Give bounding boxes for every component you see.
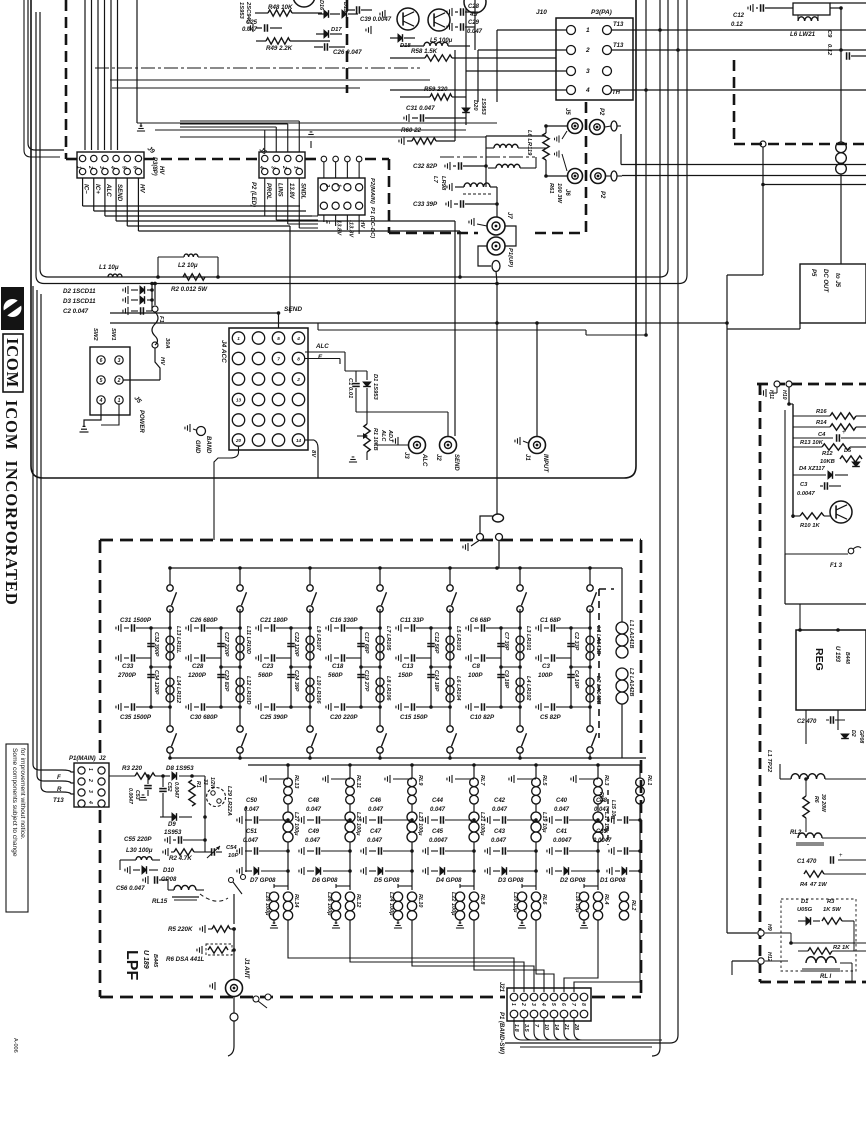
svg-text:2700P: 2700P — [117, 672, 137, 679]
svg-text:R6: R6 — [813, 796, 819, 803]
svg-text:C28: C28 — [468, 4, 480, 10]
svg-text:LINS: LINS — [276, 183, 282, 197]
svg-text:1S953: 1S953 — [238, 2, 244, 20]
svg-text:ICOM: ICOM — [3, 338, 22, 388]
svg-text:1: 1 — [76, 166, 82, 169]
svg-text:RL10: RL10 — [417, 894, 423, 907]
svg-text:J1: J1 — [524, 454, 530, 461]
svg-text:4: 4 — [585, 87, 590, 94]
svg-text:C1 68P: C1 68P — [540, 617, 562, 624]
svg-text:C26 680P: C26 680P — [190, 617, 218, 624]
svg-text:3: 3 — [87, 790, 93, 793]
svg-text:10KB: 10KB — [820, 459, 835, 465]
svg-text:2: 2 — [87, 778, 93, 782]
svg-text:4: 4 — [258, 165, 264, 169]
svg-text:GP08: GP08 — [858, 730, 864, 743]
svg-text:560P: 560P — [258, 672, 273, 679]
svg-text:ALC: ALC — [105, 183, 112, 197]
svg-text:C17 68P: C17 68P — [363, 632, 369, 654]
svg-text:C9 18P: C9 18P — [503, 670, 509, 689]
svg-text:2: 2 — [281, 165, 287, 169]
svg-text:C30 680P: C30 680P — [190, 714, 218, 721]
svg-text:1.8: 1.8 — [513, 1024, 519, 1033]
svg-text:L27 100μ: L27 100μ — [293, 812, 299, 836]
svg-text:LPF: LPF — [123, 950, 140, 980]
svg-text:D3 1SCD11: D3 1SCD11 — [63, 298, 96, 305]
svg-text:R3: R3 — [827, 899, 835, 905]
svg-text:P1(MAIN) J2: P1(MAIN) J2 — [69, 756, 106, 762]
svg-text:C2 33P: C2 33P — [573, 632, 579, 651]
svg-text:560P: 560P — [328, 672, 343, 679]
svg-text:5: 5 — [277, 336, 280, 341]
svg-text:C53: C53 — [134, 790, 140, 800]
svg-text:10P: 10P — [228, 853, 238, 859]
svg-text:J1 ANT: J1 ANT — [243, 958, 249, 980]
svg-text:C45: C45 — [432, 829, 444, 835]
svg-text:2: 2 — [324, 183, 330, 187]
svg-text:+: + — [842, 429, 846, 436]
svg-text:0.0047: 0.0047 — [429, 838, 448, 844]
svg-text:D4 GP08: D4 GP08 — [436, 877, 462, 884]
svg-text:GND: GND — [194, 440, 200, 454]
svg-text:SEND: SEND — [116, 184, 123, 202]
svg-text:C10 82P: C10 82P — [470, 714, 495, 721]
svg-text:SNDL: SNDL — [299, 183, 305, 200]
svg-text:L30 100μ: L30 100μ — [126, 847, 153, 854]
svg-text:L7: L7 — [432, 176, 438, 184]
svg-text:C29: C29 — [468, 20, 480, 26]
svg-text:-13.8V: -13.8V — [347, 220, 353, 238]
svg-text:H9: H9 — [766, 924, 772, 931]
svg-text:14: 14 — [296, 438, 302, 443]
svg-text:L1 10μ: L1 10μ — [99, 264, 119, 271]
svg-text:0.12: 0.12 — [826, 44, 832, 56]
svg-text:C4: C4 — [818, 432, 826, 438]
svg-text:R2 1K: R2 1K — [833, 945, 850, 951]
svg-text:C50: C50 — [246, 798, 258, 804]
svg-text:L4 LR102: L4 LR102 — [525, 676, 531, 700]
svg-text:R16: R16 — [816, 409, 827, 415]
svg-text:ALC: ALC — [421, 453, 427, 467]
svg-text:1: 1 — [292, 166, 298, 169]
svg-text:C12: C12 — [733, 13, 745, 19]
svg-text:C25: C25 — [246, 20, 258, 26]
svg-text:INPUT: INPUT — [542, 454, 548, 473]
svg-text:R1: R1 — [195, 781, 201, 788]
svg-text:F: F — [57, 774, 61, 781]
svg-text:for improvement without notice: for improvement without notice. — [19, 748, 26, 840]
svg-text:R6 DSA 441L: R6 DSA 441L — [166, 956, 205, 963]
svg-text:R48 10K: R48 10K — [268, 4, 293, 11]
svg-text:4: 4 — [296, 336, 300, 341]
svg-text:to J5: to J5 — [834, 273, 840, 288]
svg-text:C19 27P: C19 27P — [363, 670, 369, 692]
svg-text:REG: REG — [813, 648, 825, 671]
svg-text:J2: J2 — [435, 454, 441, 461]
svg-text:J7: J7 — [506, 212, 512, 219]
svg-text:HV: HV — [359, 220, 365, 229]
svg-text:D5: D5 — [844, 448, 852, 454]
svg-text:T13: T13 — [53, 797, 64, 804]
svg-text:PROL: PROL — [265, 183, 271, 200]
svg-text:0.0047: 0.0047 — [173, 782, 179, 799]
svg-text:RL13: RL13 — [293, 775, 299, 788]
svg-text:L13 LR11L: L13 LR11L — [175, 626, 181, 654]
svg-text:P1(UP): P1(UP) — [507, 248, 513, 267]
svg-text:+: + — [839, 853, 843, 859]
svg-text:0.047: 0.047 — [306, 807, 322, 813]
svg-text:C31 0.047: C31 0.047 — [406, 105, 435, 112]
svg-text:C25 390P: C25 390P — [260, 714, 288, 721]
svg-text:C46: C46 — [370, 798, 382, 804]
svg-text:C31 1500P: C31 1500P — [120, 617, 152, 624]
svg-text:C16 330P: C16 330P — [330, 617, 358, 624]
svg-text:D20: D20 — [472, 100, 478, 111]
svg-text:J3: J3 — [403, 452, 409, 459]
svg-text:0.047: 0.047 — [367, 838, 383, 844]
svg-text:2: 2 — [296, 377, 300, 382]
svg-text:D7 GP08: D7 GP08 — [250, 877, 276, 884]
svg-text:RL3: RL3 — [603, 775, 609, 785]
svg-text:C22 120P: C22 120P — [293, 632, 299, 657]
svg-text:100 3W: 100 3W — [556, 183, 562, 204]
svg-text:C2 0.047: C2 0.047 — [63, 308, 89, 315]
svg-text:D1: D1 — [801, 899, 808, 905]
svg-text:R5 220K: R5 220K — [168, 926, 193, 933]
svg-text:13.8V: 13.8V — [336, 220, 342, 236]
svg-text:J5: J5 — [564, 108, 570, 115]
svg-text:L29 LR22A: L29 LR22A — [226, 786, 232, 816]
svg-text:3: 3 — [118, 358, 121, 364]
svg-text:1: 1 — [336, 184, 342, 187]
svg-text:TH: TH — [612, 90, 621, 96]
svg-text:1: 1 — [87, 768, 93, 771]
svg-text:0.0047: 0.0047 — [127, 788, 133, 805]
svg-text:C49: C49 — [308, 829, 320, 835]
svg-text:D10: D10 — [163, 868, 175, 874]
svg-text:0.047: 0.047 — [430, 807, 446, 813]
svg-text:DC OUT: DC OUT — [822, 269, 828, 293]
svg-text:L5 LR103: L5 LR103 — [455, 626, 461, 650]
svg-text:J4 ACC: J4 ACC — [220, 340, 227, 363]
svg-text:R3 220: R3 220 — [122, 765, 143, 772]
svg-text:R49 2.2K: R49 2.2K — [266, 45, 293, 52]
svg-text:R12: R12 — [822, 451, 833, 457]
svg-text:RL6: RL6 — [541, 894, 547, 905]
svg-text:P5: P5 — [810, 269, 816, 277]
svg-text:L2 LA142B: L2 LA142B — [628, 668, 634, 696]
svg-text:R58 1.5K: R58 1.5K — [411, 48, 438, 55]
svg-text:0.12: 0.12 — [731, 22, 743, 28]
svg-text:C21 180P: C21 180P — [260, 617, 288, 624]
svg-text:ICOM INCORPORATED: ICOM INCORPORATED — [2, 400, 21, 606]
svg-text:L14 LR112: L14 LR112 — [175, 676, 181, 703]
svg-text:P3(8P): P3(8P) — [151, 157, 157, 176]
svg-text:D1 1S953: D1 1S953 — [372, 374, 378, 401]
svg-text:5: 5 — [120, 166, 126, 169]
svg-text:T13: T13 — [613, 43, 624, 49]
svg-text:B448: B448 — [844, 652, 850, 664]
svg-text:C6 68P: C6 68P — [470, 617, 492, 624]
svg-text:RL11: RL11 — [355, 775, 361, 788]
svg-text:RL1: RL1 — [598, 792, 604, 802]
svg-text:30A: 30A — [164, 338, 170, 349]
svg-text:10: 10 — [543, 1024, 549, 1030]
svg-text:D2 1SCD11: D2 1SCD11 — [63, 288, 96, 295]
svg-text:T13: T13 — [613, 22, 624, 28]
svg-text:1: 1 — [586, 27, 590, 34]
svg-text:2: 2 — [520, 1002, 526, 1006]
svg-text:R60 22: R60 22 — [401, 127, 422, 134]
svg-text:P2: P2 — [598, 108, 604, 116]
svg-text:RL8: RL8 — [479, 894, 485, 905]
svg-text:0.0047: 0.0047 — [797, 491, 816, 497]
svg-text:Some components subject to cha: Some components subject to change — [11, 748, 18, 857]
svg-text:1S953: 1S953 — [164, 830, 182, 836]
svg-text:C1 470: C1 470 — [797, 859, 817, 865]
svg-text:20: 20 — [235, 438, 242, 443]
svg-text:13: 13 — [236, 397, 242, 402]
svg-text:C20 220P: C20 220P — [330, 714, 358, 721]
svg-text:L6 LR119: L6 LR119 — [526, 130, 532, 156]
svg-text:4.7: 4.7 — [469, 12, 479, 18]
svg-text:C43: C43 — [494, 829, 506, 835]
svg-text:C39: C39 — [596, 829, 608, 835]
svg-text:1S953: 1S953 — [480, 98, 486, 116]
svg-text:C1 0.01: C1 0.01 — [347, 378, 353, 398]
svg-text:C18: C18 — [332, 663, 344, 670]
svg-text:HV: HV — [159, 357, 165, 366]
svg-text:D5 GP08: D5 GP08 — [374, 877, 400, 884]
svg-text:L6 LW21: L6 LW21 — [790, 31, 816, 38]
svg-text:RL1: RL1 — [646, 775, 652, 785]
svg-text:H12: H12 — [766, 952, 772, 962]
svg-text:C44: C44 — [432, 798, 444, 804]
svg-text:5: 5 — [100, 378, 103, 384]
svg-text:D4 XZ117: D4 XZ117 — [799, 466, 825, 472]
svg-text:L28 100μ: L28 100μ — [264, 892, 270, 916]
svg-text:ALC: ALC — [380, 429, 386, 442]
svg-text:F1 3: F1 3 — [830, 563, 843, 569]
svg-text:L5 100μ: L5 100μ — [430, 38, 453, 44]
svg-text:L25 100μ: L25 100μ — [355, 812, 361, 836]
svg-text:P3(PA): P3(PA) — [591, 9, 612, 16]
svg-text:7: 7 — [277, 356, 280, 361]
svg-text:2: 2 — [117, 378, 121, 384]
svg-text:L23 100μ: L23 100μ — [417, 812, 423, 836]
svg-text:3.5: 3.5 — [523, 1024, 529, 1033]
svg-text:C51: C51 — [246, 829, 258, 835]
svg-text:C12 56P: C12 56P — [433, 632, 439, 654]
svg-text:C47: C47 — [370, 829, 382, 835]
svg-text:3: 3 — [98, 166, 104, 169]
svg-text:C28: C28 — [192, 663, 204, 670]
svg-text:R2 4.7K: R2 4.7K — [169, 855, 192, 862]
svg-text:4: 4 — [540, 1002, 546, 1006]
svg-text:RL14: RL14 — [293, 894, 299, 907]
svg-text:L1 LA141B: L1 LA141B — [628, 620, 634, 648]
svg-text:5: 5 — [550, 1003, 556, 1006]
svg-text:100P: 100P — [538, 672, 553, 679]
svg-text:A-006: A-006 — [12, 1038, 18, 1053]
svg-text:L1 TP22: L1 TP22 — [766, 750, 772, 773]
svg-text:H10: H10 — [781, 390, 787, 400]
svg-text:4: 4 — [109, 165, 115, 169]
svg-text:C40: C40 — [556, 798, 568, 804]
svg-text:3: 3 — [586, 68, 590, 75]
svg-text:C39 0.0047: C39 0.0047 — [360, 17, 392, 23]
svg-text:IC+: IC+ — [94, 184, 101, 194]
svg-text:C34 120P: C34 120P — [153, 670, 159, 695]
svg-text:HV: HV — [158, 166, 164, 175]
svg-text:1200P: 1200P — [188, 672, 207, 679]
svg-text:8: 8 — [297, 356, 300, 361]
svg-text:C27 220P: C27 220P — [223, 632, 229, 657]
svg-text:C33 39P: C33 39P — [413, 201, 438, 208]
svg-text:C4 10P: C4 10P — [573, 670, 579, 689]
svg-text:L3 LR101: L3 LR101 — [525, 626, 531, 650]
svg-text:RL9: RL9 — [417, 775, 423, 786]
svg-text:100P: 100P — [468, 672, 483, 679]
svg-text:L18 10μ: L18 10μ — [574, 892, 580, 913]
svg-text:39 20W: 39 20W — [820, 794, 826, 813]
svg-text:D2 GP08: D2 GP08 — [560, 877, 586, 884]
svg-text:L7 LR105: L7 LR105 — [385, 626, 391, 651]
svg-text:F1: F1 — [158, 316, 164, 323]
svg-text:L20 10μ: L20 10μ — [512, 892, 518, 913]
svg-text:L21 100μ: L21 100μ — [479, 812, 485, 836]
svg-text:0.047: 0.047 — [554, 807, 570, 813]
svg-text:47 1W: 47 1W — [809, 882, 827, 888]
svg-text:6: 6 — [560, 1003, 566, 1006]
svg-text:21: 21 — [563, 1023, 569, 1030]
svg-text:RL2: RL2 — [790, 830, 802, 836]
svg-text:7: 7 — [570, 1003, 576, 1006]
svg-text:P2 (LED): P2 (LED) — [250, 182, 256, 207]
svg-text:1: 1 — [237, 336, 240, 341]
svg-text:C54: C54 — [226, 845, 237, 851]
svg-text:R4: R4 — [800, 882, 808, 888]
svg-text:HV: HV — [138, 184, 145, 193]
svg-text:C42: C42 — [494, 798, 506, 804]
svg-text:J21: J21 — [498, 982, 504, 993]
svg-text:RL15: RL15 — [152, 898, 168, 905]
svg-text:14: 14 — [553, 1024, 559, 1030]
svg-text:SW1: SW1 — [110, 328, 116, 341]
svg-text:D17: D17 — [331, 27, 342, 33]
svg-text:C23: C23 — [262, 663, 274, 670]
svg-text:C13: C13 — [402, 663, 414, 670]
svg-text:0.0047: 0.0047 — [553, 838, 572, 844]
svg-text:L11 LR10D: L11 LR10D — [245, 626, 251, 654]
svg-text:RL4: RL4 — [603, 894, 609, 904]
svg-text:3: 3 — [530, 1003, 536, 1006]
svg-text:C3: C3 — [800, 482, 808, 488]
svg-text:0.047: 0.047 — [492, 807, 508, 813]
svg-text:6: 6 — [131, 166, 137, 169]
svg-text:R14: R14 — [816, 420, 827, 426]
svg-text:8: 8 — [580, 1003, 586, 1006]
svg-text:L2 LA142B: L2 LA142B — [595, 676, 601, 704]
svg-text:RL12: RL12 — [355, 894, 361, 907]
svg-text:C52: C52 — [166, 782, 172, 792]
svg-text:0.047: 0.047 — [368, 807, 384, 813]
svg-text:6: 6 — [100, 358, 103, 364]
svg-text:POWER: POWER — [138, 410, 144, 433]
svg-text:4: 4 — [87, 800, 93, 804]
svg-text:0.0047: 0.0047 — [593, 838, 612, 844]
svg-text:C26 0.047: C26 0.047 — [333, 49, 362, 56]
svg-text:SEND: SEND — [453, 454, 459, 471]
svg-text:IC−: IC− — [83, 184, 90, 194]
svg-text:2: 2 — [87, 165, 93, 169]
svg-text:8V: 8V — [310, 450, 316, 458]
svg-text:C11 33P: C11 33P — [400, 617, 424, 624]
svg-text:C2 470: C2 470 — [797, 719, 817, 725]
svg-text:ALC: ALC — [315, 343, 329, 350]
svg-text:0.047: 0.047 — [491, 838, 507, 844]
svg-text:L2 10μ: L2 10μ — [178, 262, 198, 269]
svg-text:L26 100μ: L26 100μ — [326, 892, 332, 916]
svg-text:RL7: RL7 — [479, 775, 485, 786]
svg-text:13.8V: 13.8V — [288, 183, 294, 200]
svg-text:D15: D15 — [342, 2, 348, 13]
svg-text:0.047: 0.047 — [242, 27, 258, 33]
svg-text:U05G: U05G — [797, 907, 813, 913]
svg-text:C8: C8 — [472, 663, 480, 670]
svg-text:C56 0.047: C56 0.047 — [116, 885, 145, 892]
svg-text:28: 28 — [573, 1023, 579, 1031]
svg-text:B445: B445 — [152, 954, 158, 968]
svg-text:L12 LR10D: L12 LR10D — [245, 676, 251, 704]
svg-text:C41: C41 — [556, 829, 568, 835]
svg-text:J6: J6 — [564, 189, 570, 196]
svg-text:D9: D9 — [168, 822, 176, 828]
svg-text:C5 82P: C5 82P — [540, 714, 562, 721]
svg-text:RL5: RL5 — [541, 775, 547, 786]
svg-text:0.047: 0.047 — [243, 838, 259, 844]
svg-text:C7 39P: C7 39P — [503, 632, 509, 651]
svg-text:R10 1K: R10 1K — [800, 523, 820, 529]
svg-text:ADJ: ADJ — [387, 429, 393, 442]
svg-text:C48: C48 — [308, 798, 320, 804]
svg-text:R61: R61 — [548, 183, 554, 194]
svg-text:C32 82P: C32 82P — [413, 163, 438, 170]
svg-text:C3: C3 — [542, 663, 550, 670]
svg-text:U 189: U 189 — [142, 950, 149, 969]
svg-text:C15 150P: C15 150P — [400, 714, 428, 721]
svg-text:C32 390P: C32 390P — [153, 632, 159, 657]
svg-text:C33: C33 — [122, 663, 134, 670]
svg-text:SW2: SW2 — [92, 328, 98, 341]
svg-text:RL2: RL2 — [630, 900, 636, 910]
svg-text:P2(MAIN) P1 (DC-DC): P2(MAIN) P1 (DC-DC) — [369, 178, 375, 238]
svg-text:LR98: LR98 — [440, 176, 446, 191]
svg-text:BAND: BAND — [205, 436, 211, 454]
svg-text:1K 5W: 1K 5W — [823, 907, 841, 913]
svg-text:1: 1 — [510, 1003, 516, 1006]
svg-text:L9 LR107: L9 LR107 — [315, 626, 321, 651]
svg-text:L19 10μ: L19 10μ — [541, 812, 547, 833]
svg-text:P2: P2 — [599, 191, 605, 199]
svg-text:C14 18P: C14 18P — [433, 670, 439, 692]
svg-text:L8 LR106: L8 LR106 — [385, 676, 391, 701]
svg-text:H11: H11 — [768, 390, 774, 399]
svg-text:L6 LR104: L6 LR104 — [455, 676, 461, 700]
svg-text:RL I: RL I — [820, 974, 832, 980]
svg-text:150P: 150P — [398, 672, 413, 679]
svg-text:D6 GP08: D6 GP08 — [312, 877, 338, 884]
